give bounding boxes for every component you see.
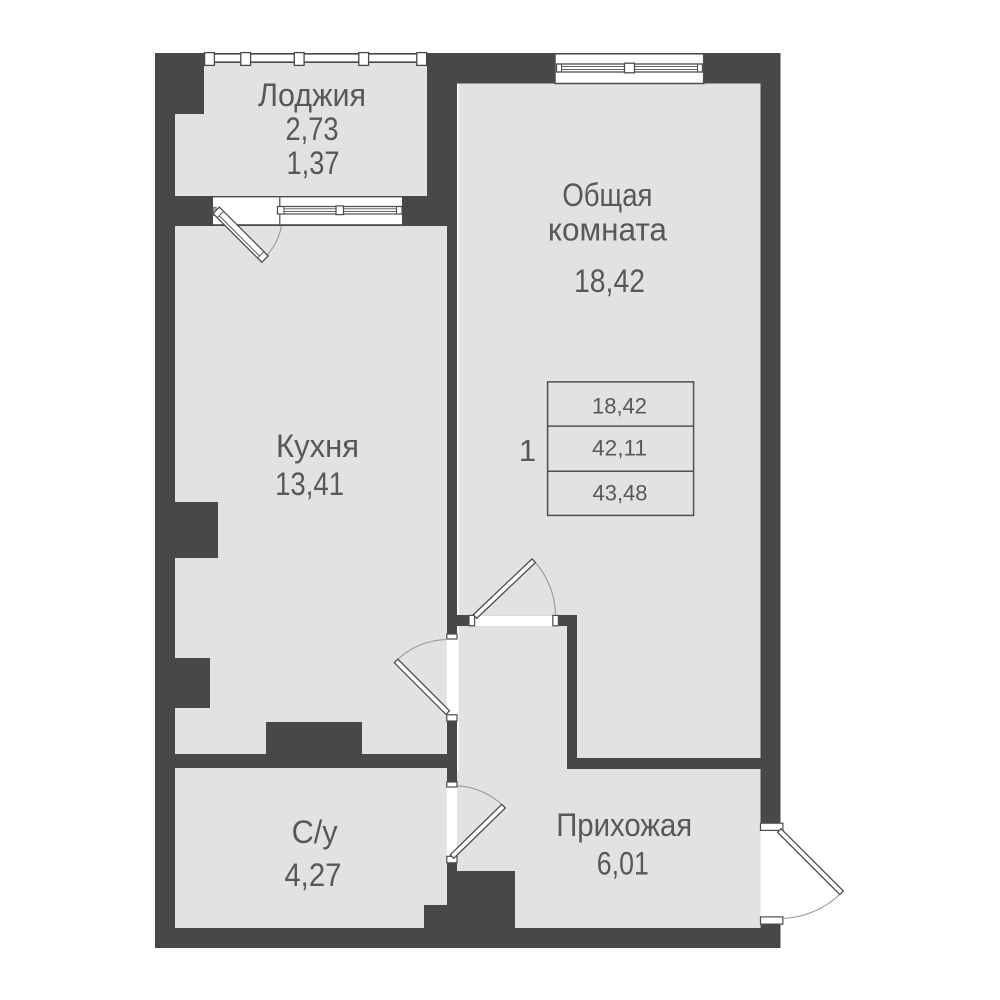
svg-text:2,73: 2,73	[286, 111, 339, 147]
svg-text:Кухня: Кухня	[276, 428, 359, 464]
svg-text:1,37: 1,37	[287, 145, 340, 181]
svg-text:С/у: С/у	[292, 814, 338, 850]
svg-text:18,42: 18,42	[574, 263, 645, 299]
svg-text:1: 1	[519, 433, 536, 468]
svg-text:Лоджия: Лоджия	[258, 77, 366, 113]
svg-text:18,42: 18,42	[592, 394, 647, 419]
svg-text:42,11: 42,11	[592, 436, 647, 461]
svg-text:Прихожая: Прихожая	[556, 807, 692, 843]
svg-text:43,48: 43,48	[593, 481, 648, 506]
svg-text:6,01: 6,01	[597, 846, 649, 882]
svg-text:комната: комната	[548, 212, 667, 248]
svg-text:Общая: Общая	[562, 177, 652, 213]
svg-text:13,41: 13,41	[275, 466, 344, 502]
svg-text:4,27: 4,27	[284, 857, 341, 893]
